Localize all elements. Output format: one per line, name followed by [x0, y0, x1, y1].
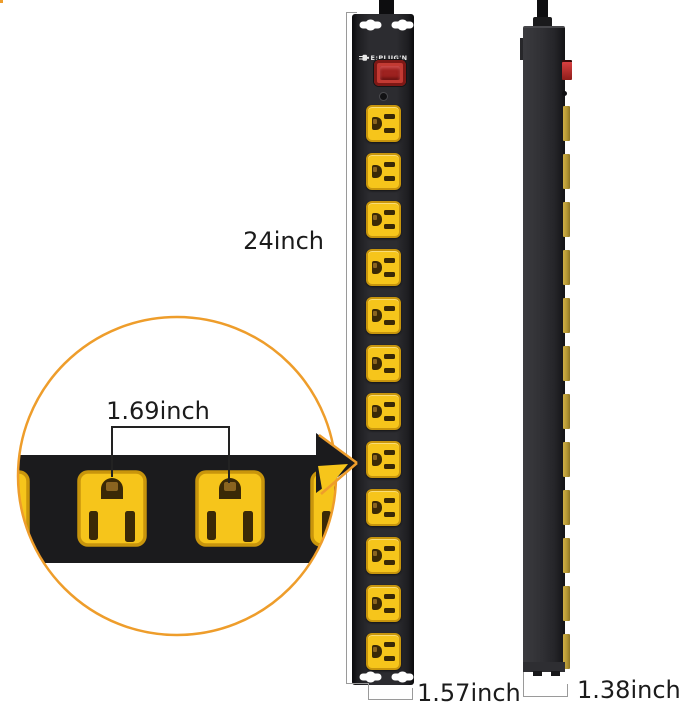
outlet-slot — [384, 224, 395, 229]
outlet-slot — [384, 464, 395, 469]
height-label: 24inch — [232, 228, 324, 254]
depth-bracket-left — [523, 672, 524, 697]
product-dimension-diagram: E:PLUG'N 24inch 1.57inch — [0, 0, 679, 705]
side-outlet-tab — [563, 538, 570, 573]
side-foot — [551, 671, 560, 676]
width-bracket-left — [368, 683, 369, 700]
outlet-ground-hole — [372, 357, 382, 370]
corner-artifact — [0, 0, 3, 3]
zoom-callout: 1.69inch — [8, 305, 366, 650]
outlet — [366, 345, 401, 382]
outlet-ground-hole — [372, 117, 382, 130]
width-label: 1.57inch — [417, 680, 521, 705]
side-power-strip — [520, 0, 578, 680]
outlet-ground-hole — [372, 213, 382, 226]
height-dimension-tick-bottom — [346, 683, 369, 684]
outlet-slot — [384, 656, 395, 661]
outlet — [366, 249, 401, 286]
width-bracket-right — [412, 688, 413, 700]
outlet — [366, 201, 401, 238]
outlet-slot — [384, 320, 395, 325]
outlet — [366, 153, 401, 190]
outlet-slot — [384, 354, 395, 359]
outlet-ground-hole — [372, 165, 382, 178]
side-outlet-tab — [563, 586, 570, 621]
outlet-slot — [384, 368, 395, 373]
outlet-slot — [384, 642, 395, 647]
outlet-slot — [384, 128, 395, 133]
depth-bracket-right — [567, 684, 568, 697]
outlet — [366, 585, 401, 622]
side-outlet-tab — [563, 106, 570, 141]
outlet — [366, 489, 401, 526]
outlet-slot — [384, 402, 395, 407]
outlet-slot — [384, 416, 395, 421]
outlet — [366, 441, 401, 478]
side-outlet-tab — [563, 442, 570, 477]
outlet — [366, 537, 401, 574]
side-outlet-tab — [563, 490, 570, 525]
outlet-slot — [384, 210, 395, 215]
outlet-slot — [384, 498, 395, 503]
width-bracket-bottom — [368, 699, 413, 700]
depth-bracket-bottom — [523, 696, 568, 697]
keyhole-slot-icon — [360, 672, 414, 683]
side-foot — [533, 671, 542, 676]
outlet-ground-hole — [372, 453, 382, 466]
outlet-slot — [384, 162, 395, 167]
callout-strip-band — [8, 455, 366, 563]
side-outlet-tab — [563, 154, 570, 189]
outlet-slot — [384, 512, 395, 517]
outlet — [366, 633, 401, 670]
outlet-ground-hole — [372, 501, 382, 514]
depth-label: 1.38inch — [577, 677, 679, 703]
side-outlet-tab — [563, 250, 570, 285]
outlet-ground-hole — [372, 645, 382, 658]
outlet-slot — [384, 176, 395, 181]
outlet-slot — [384, 560, 395, 565]
outlet-ground-hole — [372, 261, 382, 274]
outlet-slot — [384, 594, 395, 599]
side-outlet-tab — [563, 298, 570, 333]
outlet — [366, 105, 401, 142]
outlet-slot — [384, 608, 395, 613]
outlet — [366, 393, 401, 430]
outlet-slot — [384, 272, 395, 277]
outlet-ground-hole — [372, 309, 382, 322]
outlet-slot — [384, 258, 395, 263]
spacing-label: 1.69inch — [106, 397, 210, 425]
height-dimension-tick-top — [346, 12, 357, 13]
outlet — [366, 297, 401, 334]
side-outlet-column — [520, 0, 578, 680]
outlet-slot — [384, 114, 395, 119]
outlet-ground-hole — [372, 597, 382, 610]
side-outlet-tab — [563, 394, 570, 429]
outlet-ground-hole — [372, 405, 382, 418]
outlet-slot — [384, 546, 395, 551]
callout-outlet — [79, 472, 145, 545]
outlet-ground-hole — [372, 549, 382, 562]
outlet-slot — [384, 450, 395, 455]
side-outlet-tab — [563, 346, 570, 381]
side-outlet-tab — [563, 202, 570, 237]
outlet-slot — [384, 306, 395, 311]
